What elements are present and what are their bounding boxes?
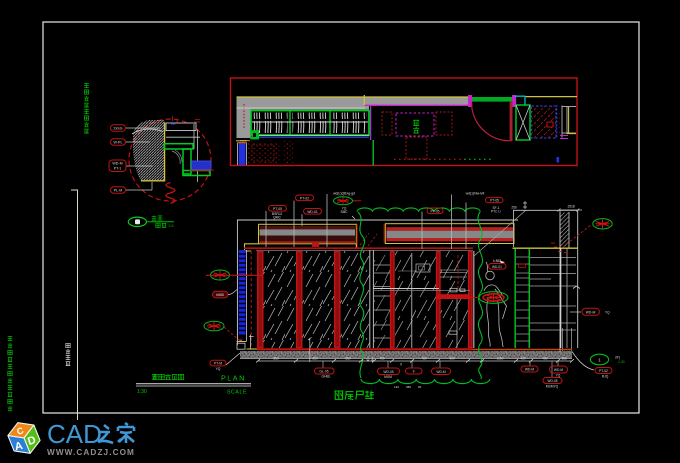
svg-text:MSM: MSM — [384, 375, 392, 379]
svg-text:WD-05: WD-05 — [547, 379, 557, 383]
svg-text:b 888: b 888 — [493, 259, 501, 263]
svg-text:WD-M: WD-M — [525, 368, 535, 372]
svg-text:b888: b888 — [216, 293, 224, 297]
svg-text:PTC L/: PTC L/ — [491, 210, 501, 214]
svg-text:RJQ: RJQ — [602, 375, 609, 379]
svg-text:WD-05: WD-05 — [383, 370, 393, 374]
svg-text:388: 388 — [561, 357, 567, 361]
svg-text:YQ: YQ — [605, 311, 610, 315]
svg-text:2xSG: 2xSG — [114, 127, 123, 131]
svg-text:wd(1)Nw-lvlt: wd(1)Nw-lvlt — [466, 191, 485, 195]
svg-text:WD-M: WD-M — [586, 310, 596, 314]
svg-text:1:5: 1:5 — [168, 223, 174, 228]
svg-text:WD-M: WD-M — [436, 370, 446, 374]
svg-text:9: 9 — [400, 362, 402, 366]
svg-text:450: 450 — [379, 357, 385, 361]
svg-text:780: 780 — [542, 357, 548, 361]
svg-text:CAD: CAD — [47, 419, 102, 449]
svg-text:PL-M: PL-M — [114, 189, 123, 193]
svg-text:PT-M: PT-M — [214, 362, 222, 366]
svg-text:WD-M: WD-M — [554, 368, 564, 372]
svg-text:60: 60 — [418, 385, 422, 389]
svg-text:1:30: 1:30 — [618, 360, 625, 364]
svg-text:SMC: SMC — [340, 210, 348, 214]
svg-text:wd(L)QBxg-gd: wd(L)QBxg-gd — [333, 192, 355, 196]
svg-text:WD-01: WD-01 — [307, 210, 318, 214]
svg-text:PT-05: PT-05 — [430, 209, 439, 213]
svg-text:WWW.CADZJ.COM: WWW.CADZJ.COM — [47, 448, 135, 457]
svg-text:PT-02: PT-02 — [599, 369, 608, 373]
svg-text:WD-M: WD-M — [112, 162, 122, 166]
svg-text:W-PL: W-PL — [114, 141, 123, 145]
svg-text:PLAN: PLAN — [221, 374, 246, 383]
svg-text:850: 850 — [312, 357, 318, 361]
svg-text:GL-05: GL-05 — [319, 370, 328, 374]
svg-text:1:30: 1:30 — [137, 389, 147, 395]
svg-text:1150: 1150 — [497, 357, 504, 361]
svg-text:120: 120 — [394, 385, 399, 389]
svg-text:900: 900 — [449, 357, 455, 361]
svg-text:1518: 1518 — [567, 205, 575, 209]
svg-text:1: 1 — [598, 358, 601, 363]
svg-text:2F|: 2F| — [615, 356, 620, 360]
svg-text:SCALE: SCALE — [227, 389, 247, 395]
svg-text:MSMYQ: MSMYQ — [546, 384, 559, 388]
svg-text:250: 250 — [511, 206, 517, 210]
svg-text:GHBL: GHBL — [322, 375, 331, 379]
svg-text:9: 9 — [413, 370, 415, 374]
svg-text:QMC: QMC — [273, 215, 281, 219]
svg-text:PT-1: PT-1 — [114, 167, 122, 171]
svg-text:WD-01: WD-01 — [492, 265, 502, 269]
svg-text:PT-05: PT-05 — [273, 207, 282, 211]
svg-text:780: 780 — [421, 357, 427, 361]
svg-text:PT-05: PT-05 — [490, 199, 499, 203]
svg-text:PT-02: PT-02 — [300, 196, 309, 200]
svg-text:YQ: YQ — [216, 367, 221, 371]
svg-text:YQ: YQ — [556, 373, 561, 377]
svg-text:420: 420 — [520, 357, 526, 361]
svg-text:650: 650 — [345, 357, 351, 361]
svg-text:380: 380 — [406, 385, 411, 389]
svg-text:850: 850 — [273, 357, 279, 361]
